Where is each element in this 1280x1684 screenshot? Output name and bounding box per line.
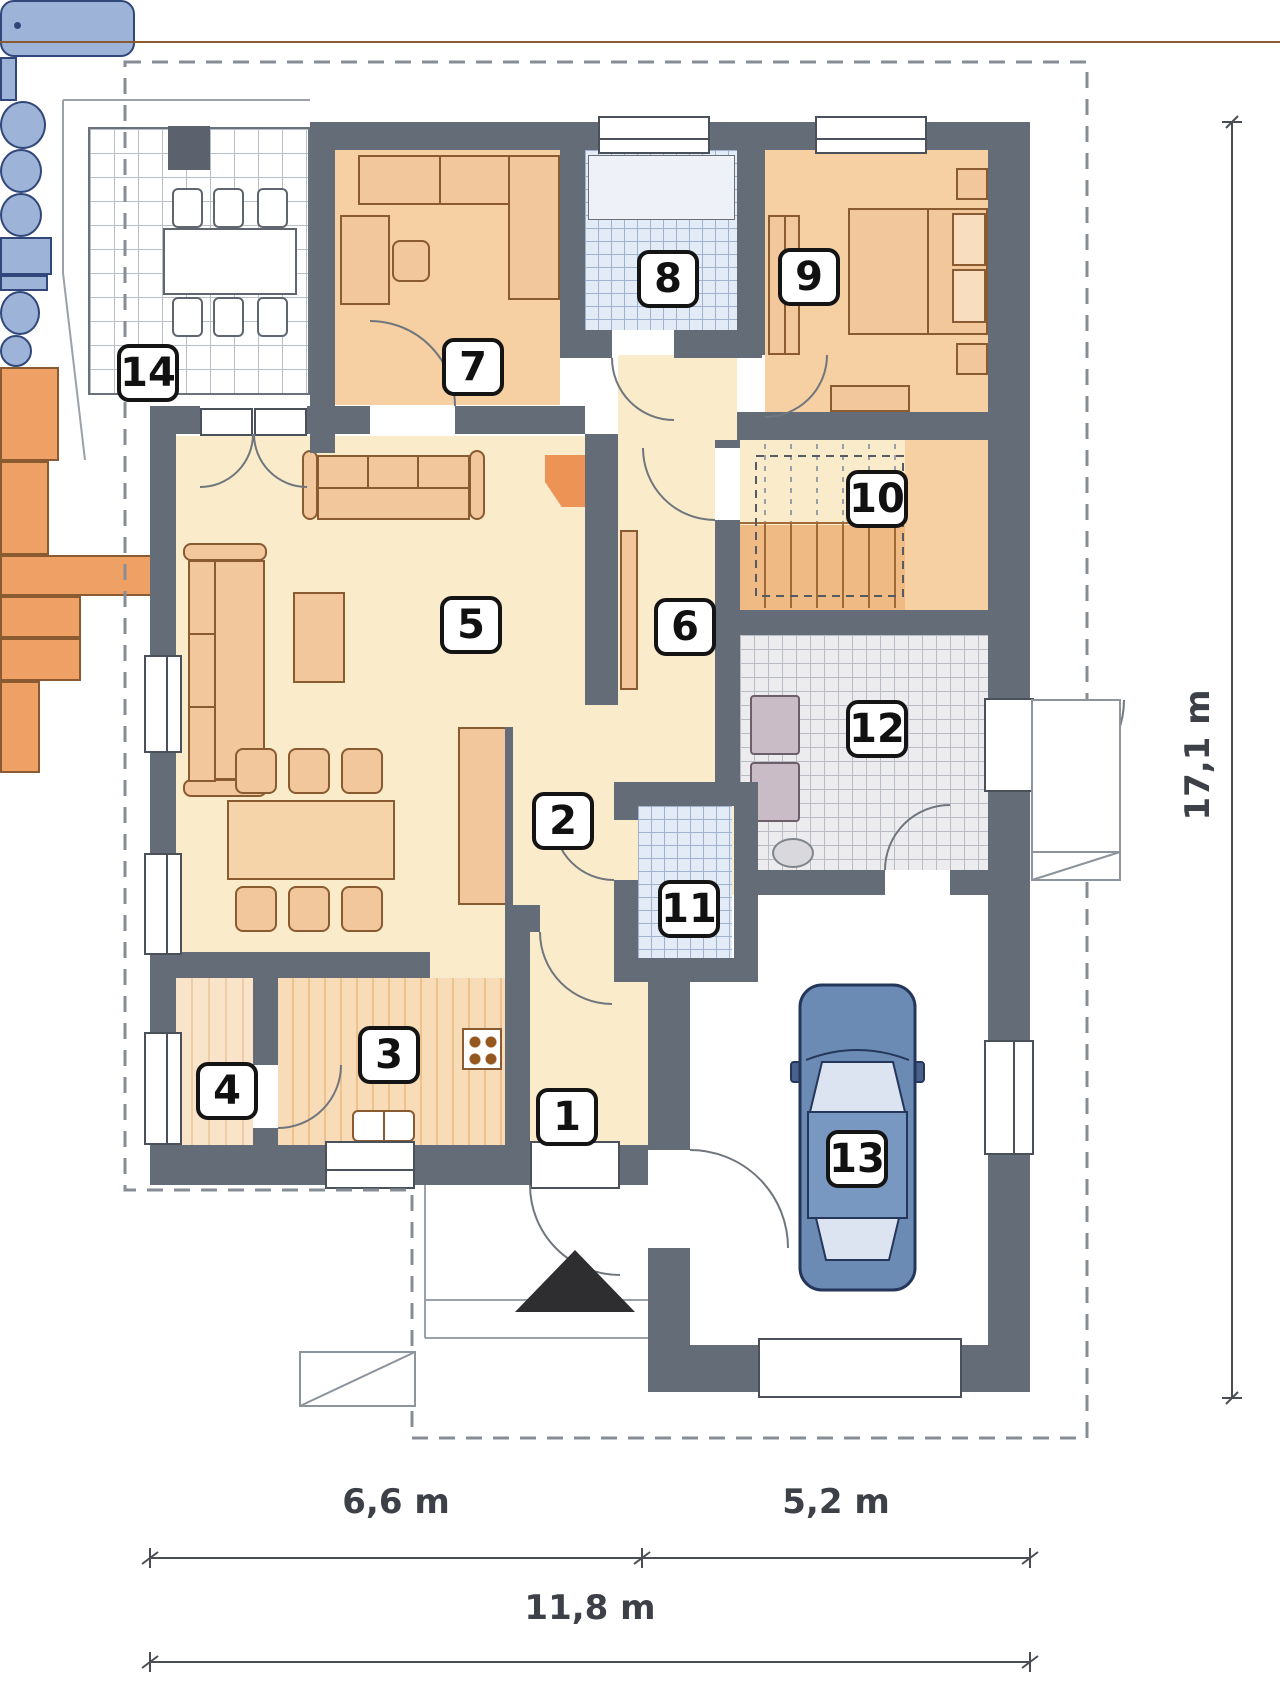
room-label-5: 5 [440, 596, 502, 654]
terrace-chair [172, 188, 203, 228]
vestibule-wardrobe [0, 681, 40, 773]
wardrobe-divider [439, 157, 441, 203]
dimension-right-total: 17,1 m [1178, 675, 1222, 835]
dimension-bottom-total: 11,8 m [500, 1588, 680, 1628]
terrace-chair [257, 297, 288, 337]
room-6-hall-floor-upper [618, 355, 737, 440]
entry-arrow-icon [515, 1250, 635, 1312]
terrace-french-door-left [200, 408, 253, 436]
dimension-bottom-right: 5,2 m [746, 1482, 926, 1522]
wall-utility-garage [740, 870, 885, 895]
wall-wc-north [614, 782, 758, 806]
room-label-10: 10 [846, 470, 908, 528]
wall-room7-west [310, 122, 335, 453]
wall-hall-stairs [715, 440, 740, 448]
room-label-4: 4 [196, 1062, 258, 1120]
room-label-7: 7 [442, 338, 504, 396]
stove-icon [462, 1028, 502, 1070]
pillow [952, 269, 986, 323]
coffee-table [293, 592, 345, 683]
terrace-chair [172, 297, 203, 337]
nightstand [956, 168, 988, 200]
wall-hall-stairs [715, 520, 740, 782]
wall-living-kitchen [176, 952, 430, 978]
wall-bath-south [560, 330, 612, 358]
wall-terrace-south [150, 406, 200, 434]
window-garage [984, 1040, 1034, 1155]
pillow [952, 213, 986, 266]
dresser [830, 385, 910, 412]
pantry-shelf [0, 638, 81, 681]
room-10-stairs-lower [740, 525, 905, 610]
floor-plan-canvas: 1 2 3 4 5 6 7 8 9 10 11 12 13 14 6,6 m 5… [0, 0, 1280, 1684]
window-living-2 [144, 853, 182, 955]
bathtub-icon [0, 0, 135, 57]
window-glass-line [166, 855, 168, 953]
terrace-chair [257, 188, 288, 228]
dimension-bottom-left: 6,6 m [306, 1482, 486, 1522]
window-glass-line [817, 138, 925, 140]
dining-chair [341, 886, 383, 932]
dining-chair [235, 886, 277, 932]
wall-pantry-east [253, 978, 278, 1065]
pantry-shelf [0, 596, 81, 638]
dining-table [227, 800, 395, 880]
sofa-armrest [469, 450, 485, 520]
garage-door [758, 1338, 962, 1398]
room-label-12: 12 [846, 700, 908, 758]
bath-cabinet [0, 237, 52, 275]
hall-sideboard [620, 530, 638, 690]
wall-living-hall [585, 434, 618, 705]
desk-chair [392, 240, 430, 282]
sofa-corner [188, 560, 265, 780]
wall-wc-south [636, 958, 758, 982]
dining-chair [235, 748, 277, 794]
wall-room7-south [335, 406, 370, 434]
sofa-cushion [188, 633, 216, 708]
window-glass-line [1013, 1042, 1015, 1153]
wall-vestibule-north [505, 905, 540, 932]
terrace-chair [213, 188, 244, 228]
wall-room7-south [455, 406, 585, 434]
porch-outline [425, 1185, 648, 1338]
terrace-french-door-right [254, 408, 307, 436]
window-glass-line [327, 1169, 413, 1171]
washbasin-icon [0, 149, 42, 193]
window-pantry [144, 1032, 182, 1145]
wall-wc-east [734, 806, 758, 982]
washing-machine-icon [750, 695, 800, 755]
room-label-11: 11 [658, 880, 720, 938]
dining-chair [341, 748, 383, 794]
wall-utility-garage [950, 870, 988, 895]
bathtub-platform [588, 155, 735, 220]
washbasin-icon [0, 193, 42, 237]
sofa-armrest [302, 450, 318, 520]
utility-exterior-door [984, 698, 1034, 792]
room-label-2: 2 [532, 792, 594, 850]
toilet-icon [0, 101, 46, 149]
sofa-armrest [183, 543, 267, 561]
terrace-table [163, 228, 297, 295]
wall-bath-bedroom [737, 122, 765, 355]
window-glass-line [166, 1034, 168, 1143]
wall-stairs-utility [740, 610, 988, 635]
wall-south [150, 1145, 325, 1185]
toilet-icon [0, 291, 40, 335]
toilet-tank [0, 57, 17, 101]
sink-divider [383, 1112, 385, 1140]
sofa-cushion [367, 455, 419, 489]
wardrobe [358, 155, 520, 205]
window-bathroom [598, 116, 710, 154]
wall-bedroom-south [737, 412, 988, 440]
window-kitchen [325, 1141, 415, 1189]
sofa-three-seat [317, 455, 470, 520]
room-10-stairs-landing [905, 440, 988, 610]
wall-south [415, 1145, 530, 1185]
room-label-6: 6 [654, 598, 716, 656]
washbasin-icon [0, 335, 32, 367]
entrance-steps [300, 1352, 415, 1406]
window-glass-line [166, 657, 168, 751]
sofa-cushion [317, 455, 369, 489]
window-living-1 [144, 655, 182, 753]
dining-chair [288, 748, 330, 794]
wall-pantry-east [253, 1128, 278, 1145]
kitchen-counter [0, 461, 49, 555]
window-glass-line [600, 138, 708, 140]
utility-exterior-steps [1032, 700, 1120, 880]
room-label-14: 14 [117, 344, 179, 402]
room-label-1: 1 [536, 1088, 598, 1146]
bed-divider [927, 210, 929, 333]
kitchen-counter [0, 367, 59, 461]
dining-chair [288, 886, 330, 932]
sofa-cushion [417, 455, 470, 489]
wall-wc-west [614, 880, 638, 982]
wall-garage-west [648, 982, 690, 1150]
terrace-chair [213, 297, 244, 337]
room-label-9: 9 [778, 248, 840, 306]
wall-south [620, 1145, 648, 1185]
nightstand [956, 343, 988, 375]
bathtub-drain [14, 22, 21, 29]
counter-divider [0, 41, 1280, 43]
kitchen-sink-icon [352, 1110, 415, 1142]
sofa-cushion [188, 706, 216, 782]
room-label-8: 8 [637, 250, 699, 308]
wall-kitchen-vestibule [505, 932, 530, 1145]
sofa-cushion [188, 560, 216, 635]
entrance-door [530, 1141, 620, 1189]
wall-room7-bath [560, 122, 585, 358]
toilet-tank [0, 275, 48, 291]
corner-closet [508, 155, 560, 300]
desk [340, 215, 390, 305]
cabinet-peninsula-edge [505, 727, 513, 905]
window-bedroom [815, 116, 927, 154]
room-label-13: 13 [826, 1130, 888, 1188]
floor-drain-icon [772, 838, 814, 868]
grill-icon [168, 126, 210, 170]
room-label-3: 3 [358, 1026, 420, 1084]
